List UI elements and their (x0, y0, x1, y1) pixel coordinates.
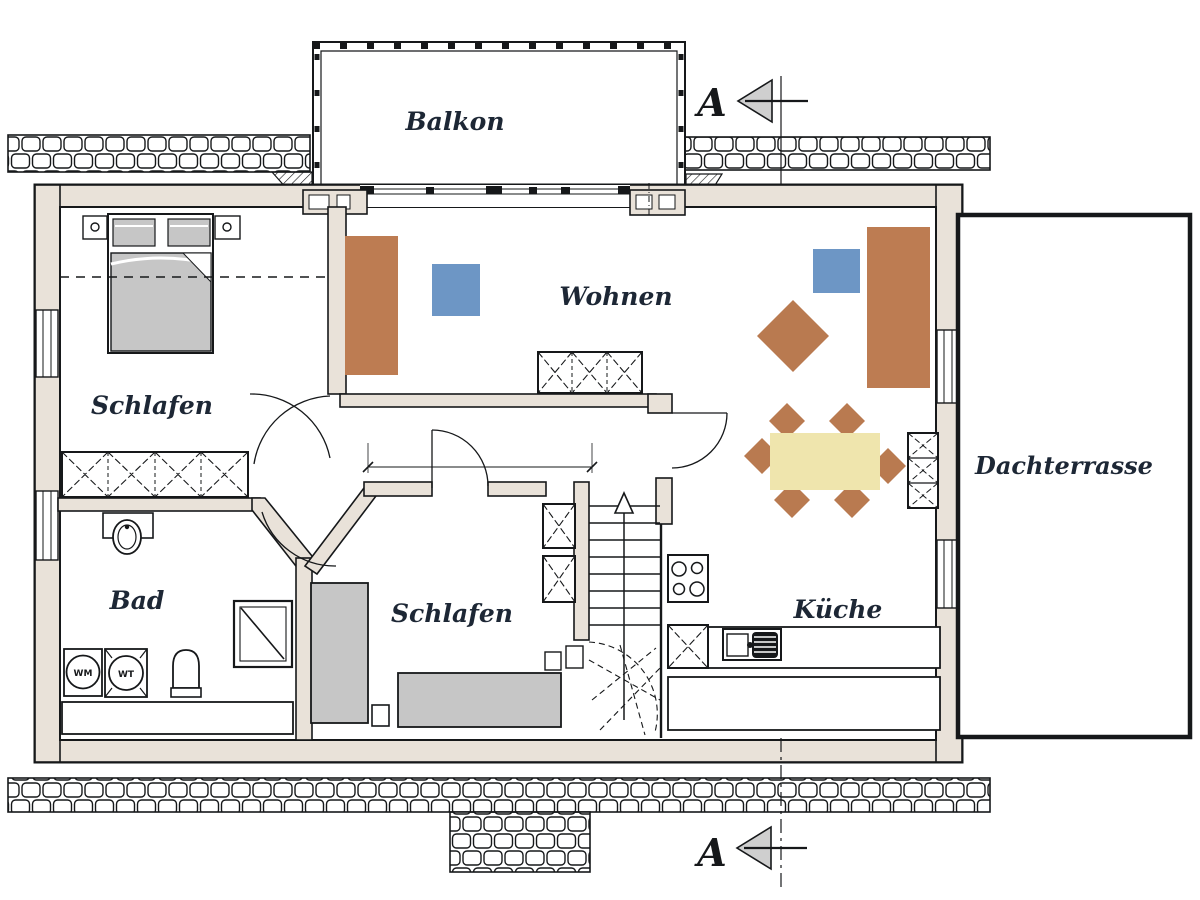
window-left-bath (36, 491, 58, 560)
dryer-label: WT (118, 670, 135, 680)
window-left-bedroom (36, 310, 58, 377)
stove (668, 555, 708, 602)
kitchen-sink (723, 629, 781, 660)
exterior-wall-bottom (35, 740, 962, 762)
dryer: WT (105, 649, 147, 697)
small-box-2 (566, 646, 583, 668)
nightstand-right (215, 216, 240, 239)
interior-wall-bedroom-bottom-north-west (364, 482, 432, 496)
pillow-left (113, 219, 155, 246)
shower (234, 601, 292, 667)
interior-wall-hall-corner (648, 394, 672, 413)
bedroom-top-label: Schlafen (91, 391, 213, 420)
roof-tile-strip-bottom (8, 778, 990, 812)
roof-terrace-label: Dachterrasse (974, 451, 1153, 480)
sofa-left (345, 236, 398, 375)
section-letter-bottom: A (694, 830, 726, 875)
roof-tile-strip-top-right (685, 137, 990, 170)
interior-wall-bedroom-top-south (58, 498, 260, 511)
knee-wall-storage-kitchen (668, 677, 940, 730)
sofa-right (867, 227, 930, 388)
kitchen-label: Küche (793, 595, 883, 624)
washing-machine: WM (64, 649, 102, 696)
small-box-1 (545, 652, 561, 670)
roof-terrace: Dachterrasse (958, 215, 1190, 737)
base-cabinet-x (668, 625, 708, 668)
balcony: Balkon (313, 42, 685, 188)
interior-wall-hall-north (340, 394, 656, 407)
balcony-glazing-band (360, 185, 630, 207)
dining-table (770, 433, 880, 490)
roof-tile-patch-bottom (450, 812, 590, 872)
washing-machine-label: WM (74, 669, 93, 679)
side-table-left (432, 264, 480, 316)
side-table-right (813, 249, 860, 293)
interior-wall-stair-west (574, 482, 589, 640)
cabinet-x-1 (543, 504, 575, 548)
floor-plan-drawing: Balkon A (0, 0, 1200, 900)
wardrobe-x-bedroom-top (62, 452, 248, 497)
building: Schlafen Wohnen (35, 183, 962, 762)
section-letter-top: A (694, 80, 726, 125)
exterior-wall-left (35, 185, 60, 762)
balcony-label: Balkon (405, 107, 505, 136)
bathroom-label: Bad (109, 586, 165, 615)
faucet-icon (747, 642, 753, 648)
interior-wall-bath-east (296, 558, 312, 740)
interior-wall-bedroom-top-east (328, 207, 346, 394)
roof-tile-strip-top-left (8, 135, 310, 172)
nightstand-left (83, 216, 107, 239)
bedroom-bottom-label: Schlafen (391, 599, 513, 628)
interior-wall-bedroom-bottom-north-east (488, 482, 546, 496)
knee-wall-storage-bath (62, 702, 293, 734)
section-marker-top: A (694, 76, 808, 188)
floor-plan-canvas: Balkon A (0, 0, 1200, 900)
wardrobe-gray (311, 583, 368, 723)
pillow-right (168, 219, 210, 246)
bedside-box (372, 705, 389, 726)
sideboard-x (538, 352, 642, 393)
blanket (111, 253, 211, 351)
tall-cabinet-x (908, 433, 938, 508)
toilet (171, 650, 201, 697)
cabinet-x-2 (543, 556, 575, 602)
interior-wall-stair-post (656, 478, 672, 524)
double-bed (108, 214, 213, 353)
bed-gray (398, 673, 561, 727)
living-room-label: Wohnen (559, 282, 672, 311)
